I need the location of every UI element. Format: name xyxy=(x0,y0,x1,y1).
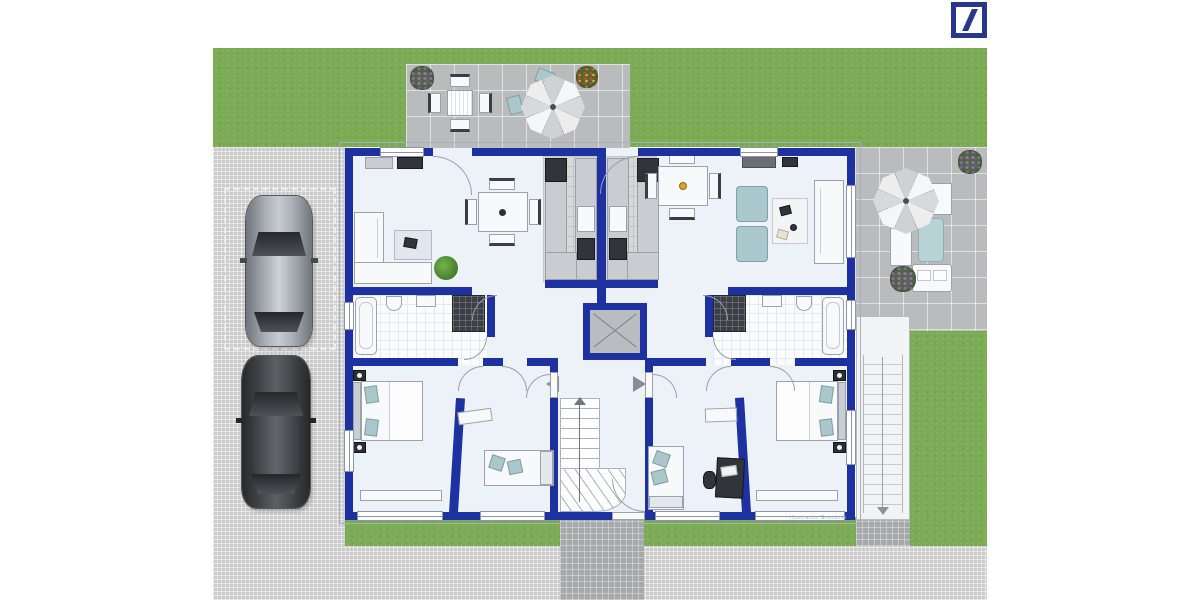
chair xyxy=(529,199,541,225)
sofa-cushion-line xyxy=(820,188,838,254)
up-arrow-icon xyxy=(574,397,586,405)
chair xyxy=(669,208,695,220)
deutsche-bank-logo xyxy=(951,2,987,38)
silver-car xyxy=(246,196,312,346)
pillow xyxy=(364,418,379,436)
sofa-cushion-line xyxy=(360,218,378,258)
floorplan-canvas: Illustration Grundriss xyxy=(0,0,1200,600)
nightstand-lamp xyxy=(353,370,366,381)
pillow xyxy=(819,385,834,404)
outer-wall xyxy=(847,330,855,410)
exterior-stair-line xyxy=(882,357,883,507)
garden-chair xyxy=(428,93,441,113)
outer-wall xyxy=(424,148,433,156)
outer-wall xyxy=(645,512,655,520)
dark-car xyxy=(242,356,310,508)
car-mirror-right xyxy=(311,258,318,263)
flower-bed xyxy=(576,66,598,88)
nightstand-lamp xyxy=(833,442,846,453)
outer-wall xyxy=(720,512,755,520)
fridge-left xyxy=(545,158,567,182)
garden-chair xyxy=(450,119,470,132)
window xyxy=(480,511,545,521)
pillow xyxy=(364,385,379,404)
armchair xyxy=(736,186,768,222)
tv xyxy=(782,157,798,167)
garden-table xyxy=(447,90,473,116)
parasol-right xyxy=(873,168,939,234)
bench-cushion xyxy=(933,270,947,281)
entry-door-leaf-right xyxy=(645,372,653,398)
window xyxy=(344,302,354,330)
outer-wall xyxy=(345,512,357,520)
fruit-bowl xyxy=(679,182,687,190)
sideboard xyxy=(365,157,393,169)
window xyxy=(846,410,856,465)
window xyxy=(357,511,443,521)
kitchen-cabinet-corner-left xyxy=(545,252,577,280)
wall-bedrow-left-2 xyxy=(483,358,503,366)
table-decor xyxy=(403,237,418,249)
pillow xyxy=(819,418,834,436)
toilet-left xyxy=(386,296,402,311)
outer-wall xyxy=(345,148,353,302)
outer-wall xyxy=(345,330,353,430)
window xyxy=(740,147,778,157)
flower-bed xyxy=(958,150,982,174)
sideboard xyxy=(742,156,776,168)
stove-right xyxy=(609,238,627,260)
car-mirror-left xyxy=(236,418,243,423)
toilet-right xyxy=(796,296,812,311)
washbasin-right xyxy=(762,295,782,307)
flower-bed xyxy=(410,66,434,90)
car-roof xyxy=(256,256,302,312)
table-centerpiece xyxy=(499,209,506,216)
bed-duvet xyxy=(389,382,422,440)
wall-bedrow-left-1 xyxy=(353,358,458,366)
chair xyxy=(465,199,477,225)
outer-wall xyxy=(778,148,855,156)
wall-kitchen-right xyxy=(606,280,658,288)
tv xyxy=(397,157,423,169)
exterior-stair-treads xyxy=(863,355,903,513)
window xyxy=(344,430,354,472)
window xyxy=(655,511,720,521)
entry-door-leaf-left xyxy=(550,372,558,398)
stove-left xyxy=(577,238,595,260)
stairwell-wall-right-top xyxy=(645,358,653,372)
exterior-stair xyxy=(856,316,910,520)
party-wall-center xyxy=(597,148,606,306)
wall-bedrow-right-2 xyxy=(731,358,770,366)
bed-headboard xyxy=(353,382,361,440)
wall-bedrow-right-1 xyxy=(645,358,706,366)
chair xyxy=(709,173,721,199)
outer-wall xyxy=(443,512,480,520)
armchair xyxy=(736,226,768,262)
chair xyxy=(489,234,515,246)
wardrobe-office xyxy=(705,407,737,422)
wall-bedrow-right-3 xyxy=(795,358,847,366)
sofa-left-horizontal xyxy=(354,262,432,284)
bed-footboard xyxy=(649,496,683,508)
car-mirror-left xyxy=(240,258,247,263)
window xyxy=(846,300,856,330)
car-roof xyxy=(253,416,299,474)
down-arrow-icon xyxy=(877,507,889,515)
sink-right xyxy=(609,206,627,232)
garden-chair xyxy=(479,93,492,113)
kids-bed-headboard xyxy=(540,451,553,485)
corner-sofa xyxy=(890,228,912,266)
bench-cushion xyxy=(917,270,931,281)
rug-item xyxy=(790,224,797,231)
window xyxy=(846,185,856,258)
desk-chair xyxy=(703,471,716,489)
outer-wall xyxy=(472,148,606,156)
desk xyxy=(715,457,745,498)
outer-wall xyxy=(545,512,612,520)
garden-grass-right xyxy=(910,331,987,546)
kitchen-cabinet-corner-right xyxy=(627,252,659,280)
garden-chair xyxy=(450,74,470,87)
car-rear-window xyxy=(251,474,301,494)
nightstand-lamp xyxy=(353,442,366,453)
bed-headboard xyxy=(838,382,846,440)
outer-wall xyxy=(847,258,855,300)
outer-wall xyxy=(847,148,855,185)
car-rear-window xyxy=(254,312,304,332)
chair xyxy=(645,173,657,199)
washbasin-left xyxy=(416,295,436,307)
plant xyxy=(434,256,458,280)
staircase-walkline xyxy=(579,404,580,502)
car-windshield xyxy=(252,232,306,256)
pillow xyxy=(507,459,524,476)
building-entrance-door xyxy=(612,512,645,520)
wall-kitchen-left xyxy=(545,280,597,288)
car-mirror-right xyxy=(309,418,316,423)
dresser-left xyxy=(360,490,442,501)
wall-bath-top-right xyxy=(728,287,847,295)
watermark: Illustration Grundriss xyxy=(790,515,847,521)
path-right xyxy=(856,520,910,546)
chair xyxy=(489,178,515,190)
car-windshield xyxy=(249,392,303,416)
window xyxy=(380,147,424,157)
nightstand-lamp xyxy=(833,370,846,381)
dresser-right xyxy=(756,490,838,501)
sink-left xyxy=(577,206,595,232)
flower-bed xyxy=(890,266,916,292)
deutsche-bank-slash-icon xyxy=(962,9,978,31)
outer-wall xyxy=(638,148,740,156)
bathtub-inner xyxy=(826,302,840,349)
stairwell-wall-left-top xyxy=(550,358,558,372)
bathtub-inner xyxy=(359,302,373,349)
wall-bath-top-left xyxy=(353,287,472,295)
entrance-path xyxy=(560,520,644,600)
